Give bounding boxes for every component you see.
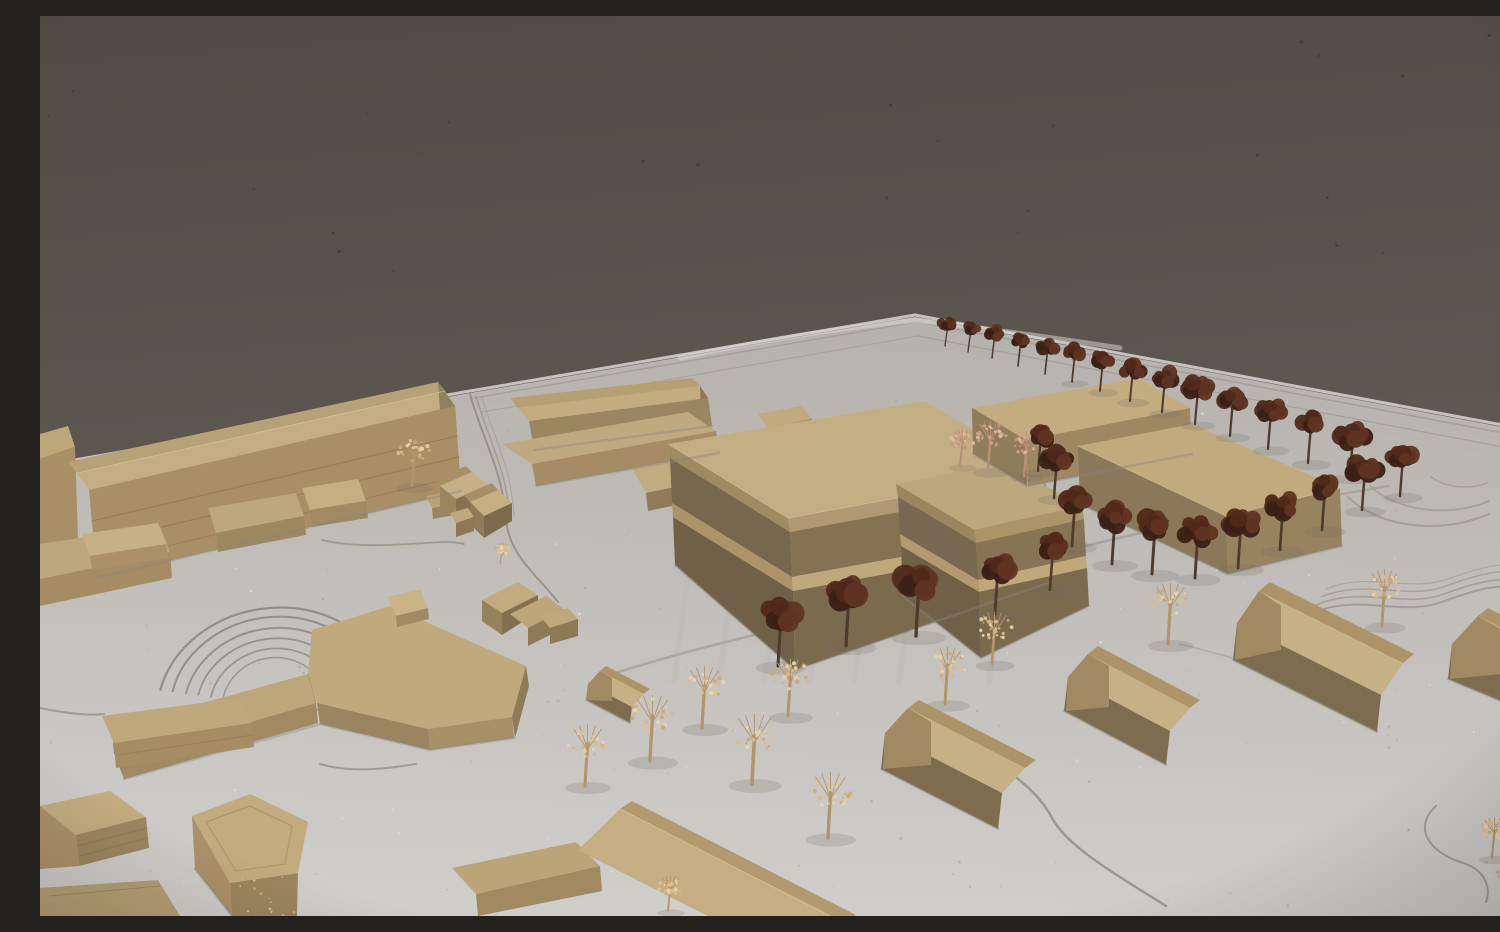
model-scene bbox=[40, 16, 1500, 916]
architectural-model-photo bbox=[40, 16, 1500, 916]
vignette bbox=[40, 16, 1500, 916]
